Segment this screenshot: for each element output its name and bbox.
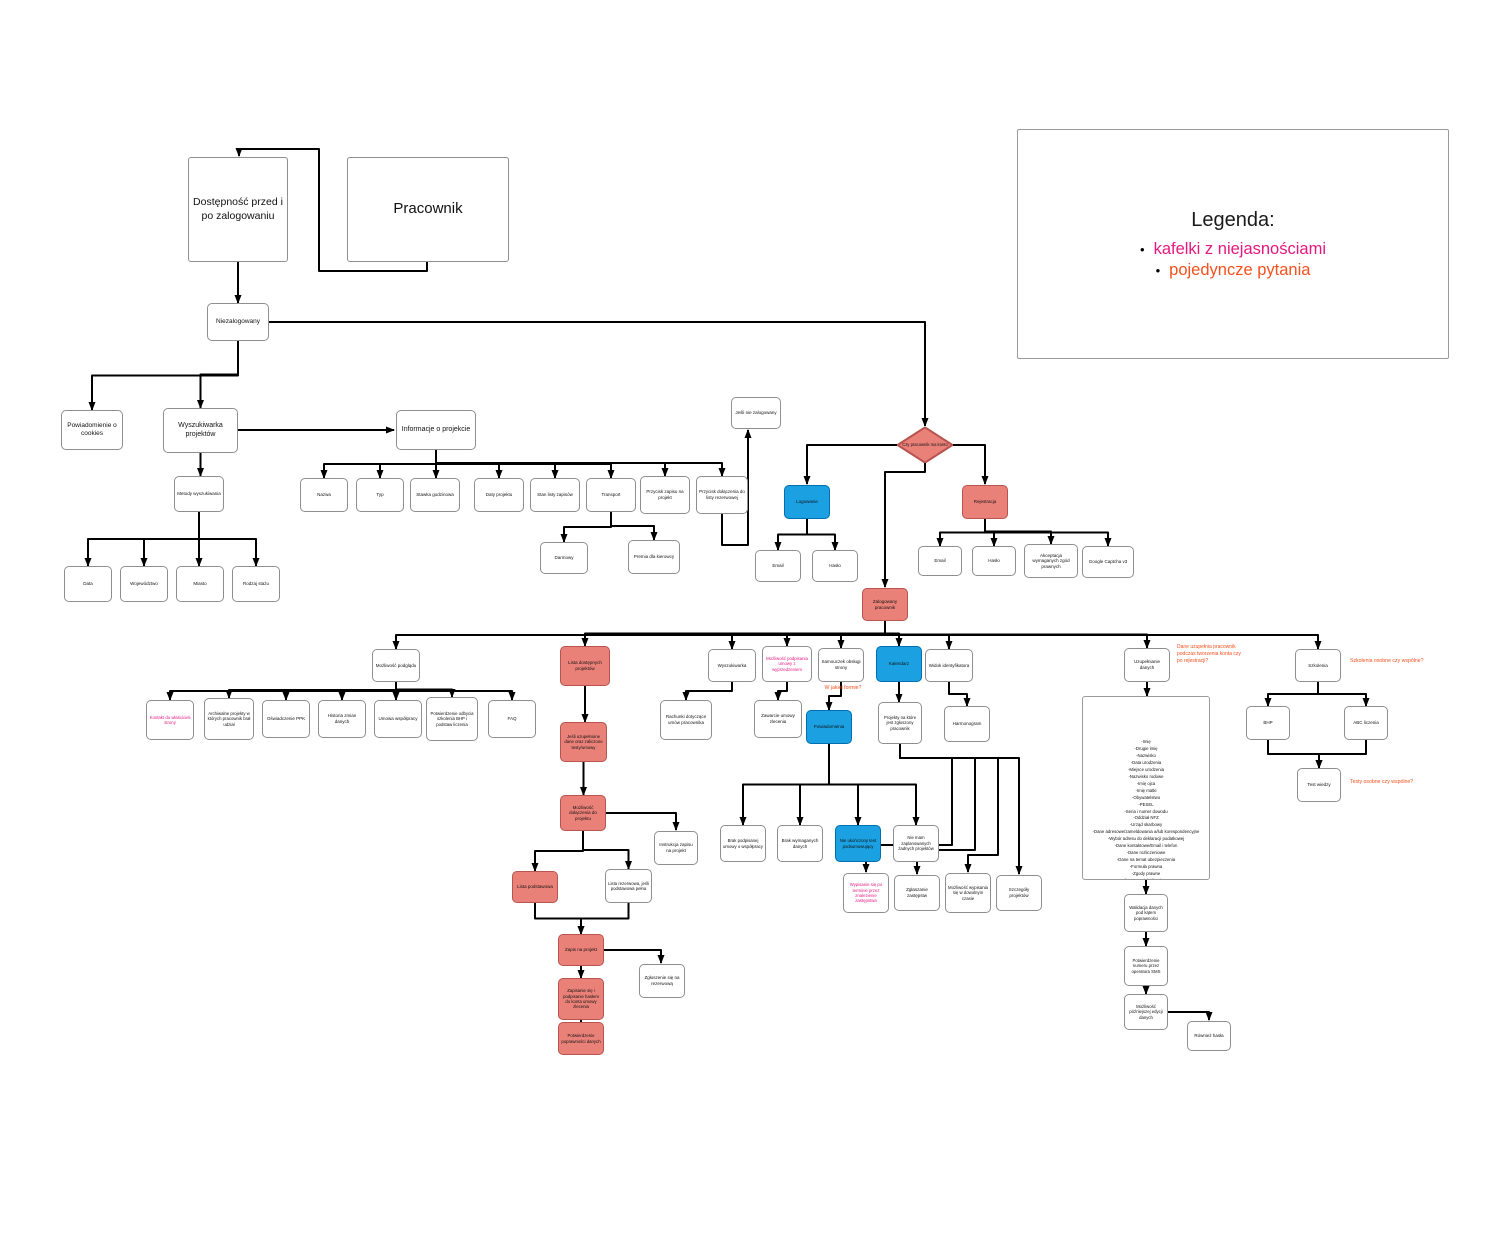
edge-zalogowany-pracownik-samouczek	[841, 621, 885, 648]
node-email-logowanie: Email	[755, 550, 801, 582]
edge-powiadomienia-brak-danych	[800, 744, 829, 825]
node-rejestracja: Rejestracja	[962, 485, 1008, 519]
node-uzupelnianie-danych-label: Uzupełnianie danych	[1127, 659, 1167, 670]
edge-lista-podstawowa-zapis-na-projekt	[535, 903, 581, 934]
node-daty-projektu-label: Daty projektu	[486, 492, 513, 498]
node-harmonogram-label: Harmonogram	[953, 721, 982, 727]
node-archiwalne-projekty: Archiwalne projekty w których pracownik …	[204, 698, 254, 740]
node-wojewodztwo: Województwo	[120, 566, 168, 602]
node-walidacja-danych-label: Walidacja danych pod kątem poprawności	[1127, 905, 1165, 921]
edge-bhp-test-wiedzy	[1268, 740, 1319, 768]
node-historia-zmian-label: Historia zmian danych	[321, 713, 363, 724]
node-rodzaj-stazu: Rodzaj stażu	[232, 566, 280, 602]
node-rodzaj-stazu-label: Rodzaj stażu	[243, 581, 269, 587]
node-niezalogowany-label: Niezalogowany	[216, 318, 260, 326]
edge-transport-darmowy	[564, 512, 611, 542]
edge-niezalogowany-czy-pracownik-ma-konto	[269, 322, 925, 426]
edge-abc-liczenia-test-wiedzy	[1319, 740, 1366, 768]
node-kalendarz-label: Kalendarz	[889, 661, 909, 667]
node-zapisanie-sie: Zapisanie się i podpisanie hasłem do kon…	[558, 978, 604, 1020]
legend-box: Legenda: • kafelki z niejasnościami • po…	[1017, 129, 1449, 359]
node-nazwa: Nazwa	[300, 478, 348, 512]
node-oswiadczenie-ppk: Oświadczenie PPK	[262, 700, 310, 738]
node-archiwalne-projekty-label: Archiwalne projekty w których pracownik …	[207, 711, 251, 727]
node-pracownik: Pracownik	[347, 157, 509, 262]
edge-wyszukiwarka-rachunki	[686, 682, 732, 700]
node-logowanie-label: Logowanie	[796, 499, 818, 505]
node-mozliwosc-wypisania-label: Możliwość wypisania się w dowolnym czasi…	[948, 885, 988, 901]
node-mozliwosc-edycji: Możliwość późniejszej edycji danych	[1124, 994, 1168, 1030]
node-zapis-na-projekt: Zapis na projekt	[558, 934, 604, 966]
node-czy-pracownik-ma-konto-label: Czy pracownik ma konto	[902, 442, 948, 447]
node-brak-danych: Brak wymaganych danych	[777, 825, 823, 862]
node-wyszukiwarka: Wyszukiwarka	[708, 649, 756, 682]
note-samouczek-forma: W jakiej formie?	[816, 685, 870, 692]
bullet-icon: •	[1140, 242, 1145, 257]
node-umowa-wspolpracy-label: Umowa współpracy	[378, 716, 417, 722]
edge-transport-premia-dla-kierowcy	[611, 512, 654, 540]
node-logowanie: Logowanie	[784, 485, 830, 519]
node-pracownik-label: Pracownik	[393, 200, 462, 219]
node-mozliwosc-podpisania-label: Możliwość podpisania umowy z wyprzedzeni…	[765, 656, 809, 672]
legend-item-single-questions: • pojedyncze pytania	[1156, 261, 1311, 280]
edge-metody-wyszukiwania-rodzaj-stazu	[199, 512, 256, 566]
edge-logowanie-email-logowanie	[778, 519, 807, 550]
node-widok-identyfikatora: Widok identyfikatora	[925, 649, 973, 682]
node-potwierdzenie-sms: Potwierdzenie numeru przez operatora SMS	[1124, 946, 1168, 986]
node-mozliwosc-podgladu: Możliwość podglądu	[372, 649, 420, 682]
node-haslo-logowanie: Hasło	[812, 550, 858, 582]
node-przycisk-zapisu-label: Przycisk zapisu na projekt	[643, 489, 687, 500]
node-powiadomienia: Powiadomienia	[806, 710, 852, 744]
node-nazwa-label: Nazwa	[317, 492, 331, 498]
node-lista-podstawowa-label: Lista podstawowa	[517, 884, 553, 890]
node-stan-listy-zapisow-label: Stan listy zapisów	[537, 492, 573, 498]
node-transport-label: Transport	[601, 492, 620, 498]
node-stawka-godzinowa-label: Stawka godzinowa	[416, 492, 454, 498]
legend-item-ambiguous-tiles: • kafelki z niejasnościami	[1140, 240, 1326, 259]
legend-item-ambiguous-tiles-label: kafelki z niejasnościami	[1154, 240, 1326, 259]
node-test-wiedzy-label: Test wiedzy	[1307, 782, 1330, 788]
node-wypisanie-po-terminie-label: Wypisanie się po terminie przez znalezie…	[846, 882, 886, 903]
node-wojewodztwo-label: Województwo	[130, 581, 158, 587]
node-akceptacja-zgod: Akceptacja wymaganych zgód prawnych	[1024, 544, 1078, 578]
node-metody-wyszukiwania: Metody wyszukiwania	[174, 476, 224, 512]
edge-informacje-o-projekcie-przycisk-dolaczenia	[436, 450, 722, 476]
edge-mozliwosc-podgladu-historia-zmian	[342, 682, 396, 700]
node-zgloszenie-rezerwowa-label: Zgłoszenie się na rezerwową	[642, 975, 682, 986]
node-zalogowany-pracownik: Zalogowany pracownik	[862, 588, 908, 621]
node-mozliwosc-podgladu-label: Możliwość podglądu	[376, 663, 417, 669]
node-typ-label: Typ	[376, 492, 383, 498]
node-projekty-zgloszony: Projekty na które jest zgłoszony pracown…	[878, 702, 922, 744]
node-email-logowanie-label: Email	[772, 563, 783, 569]
node-harmonogram: Harmonogram	[944, 706, 990, 742]
node-wyszukiwarka-projektow-label: Wyszukiwarka projektów	[166, 422, 235, 440]
diagram-canvas: Dostępność przed i po zalogowaniuPracown…	[0, 0, 1500, 1245]
node-email-rejestracja-label: Email	[934, 558, 945, 564]
edge-rejestracja-email-rejestracja	[940, 519, 985, 546]
node-cookies: Powiadomienie o cookies	[61, 410, 123, 450]
edge-widok-identyfikatora-harmonogram	[949, 682, 967, 706]
node-stan-listy-zapisow: Stan listy zapisów	[530, 478, 580, 512]
node-potwierdzenie-poprawnosci-label: Potwierdzenie poprawności danych	[561, 1033, 601, 1044]
node-szczegoly-projektow-label: Szczegóły projektów	[999, 887, 1039, 898]
node-mozliwosc-podpisania: Możliwość podpisania umowy z wyprzedzeni…	[762, 646, 812, 682]
node-zawarcie-umowy: Zawarcie umowy zlecenia	[754, 700, 802, 738]
node-haslo-rejestracja: Hasło	[972, 546, 1016, 576]
edge-mozliwosc-edycji-rowniez-hasla	[1168, 1012, 1209, 1020]
edge-lista-rezerwowa-zapis-na-projekt	[581, 903, 629, 934]
node-zalogowany-pracownik-label: Zalogowany pracownik	[865, 599, 905, 610]
node-lista-dostepnych: Lista dostępnych projektów	[560, 646, 610, 686]
node-jesli-uzupelnione-label: Jeśli uzupełnione dane oraz zaliczone te…	[563, 734, 604, 750]
node-google-captcha-label: Google Captcha v3	[1089, 559, 1128, 565]
node-dostepnosc-label: Dostępność przed i po zalogowaniu	[191, 196, 285, 222]
edge-mozliwosc-dolaczenia-lista-rezerwowa	[583, 831, 629, 869]
node-potwierdzenie-sms-label: Potwierdzenie numeru przez operatora SMS	[1127, 958, 1165, 974]
edge-powiadomienia-nie-mam-projektow	[829, 744, 916, 825]
node-bhp-label: BHP	[1263, 720, 1272, 726]
legend-title: Legenda:	[1191, 209, 1274, 232]
node-uzupelnianie-danych: Uzupełnianie danych	[1124, 648, 1170, 682]
node-przycisk-dolaczenia: Przycisk dołączenia do listy rezerwowej	[696, 476, 748, 514]
node-haslo-logowanie-label: Hasło	[829, 563, 841, 569]
node-lista-dostepnych-label: Lista dostępnych projektów	[563, 660, 607, 671]
node-kontakt-wlasciciele: Kontakt do właścicieli strony	[146, 700, 194, 740]
node-szczegoly-projektow: Szczegóły projektów	[996, 875, 1042, 911]
node-nie-mam-projektow-label: Nie mam zaplanowanych żadnych projektów	[896, 835, 936, 851]
node-szkolenia: Szkolenia	[1295, 649, 1341, 682]
node-brak-danych-label: Brak wymaganych danych	[780, 838, 820, 849]
node-rowniez-hasla-label: Również hasła	[1194, 1033, 1223, 1039]
node-premia-dla-kierowcy-label: Premia dla kierowcy	[634, 554, 674, 560]
node-przycisk-dolaczenia-label: Przycisk dołączenia do listy rezerwowej	[699, 489, 745, 500]
node-nie-mam-projektow: Nie mam zaplanowanych żadnych projektów	[893, 825, 939, 862]
node-miasto-label: Miasto	[193, 581, 206, 587]
node-zglaszanie-zastepstw-label: Zgłaszanie zastępstw	[897, 887, 937, 898]
note-uzupelnianie-danych: Dane uzupełnia pracownik podczas tworzen…	[1177, 644, 1243, 664]
node-samouczek-label: Samouczek obsługi strony	[821, 659, 861, 670]
edge-czy-pracownik-ma-konto-rejestracja	[953, 445, 985, 484]
edge-szkolenia-bhp	[1268, 682, 1318, 706]
node-jesli-nie-zalogowany: Jeśli nie zalogowany	[731, 397, 781, 429]
node-nie-ukonczony-test-label: Nie ukończony test podsumowujący	[838, 838, 878, 849]
node-nie-ukonczony-test: Nie ukończony test podsumowujący	[835, 825, 881, 862]
node-zapisanie-sie-label: Zapisanie się i podpisanie hasłem do kon…	[561, 988, 601, 1009]
edge-metody-wyszukiwania-wojewodztwo	[144, 512, 199, 566]
node-brak-umowy: Brak podpisanej umowy o współpracy	[720, 825, 766, 862]
node-miasto: Miasto	[176, 566, 224, 602]
node-typ: Typ	[356, 478, 404, 512]
node-oswiadczenie-ppk-label: Oświadczenie PPK	[267, 716, 305, 722]
node-przycisk-zapisu: Przycisk zapisu na projekt	[640, 476, 690, 514]
node-wypisanie-po-terminie: Wypisanie się po terminie przez znalezie…	[843, 873, 889, 913]
node-lista-podstawowa: Lista podstawowa	[512, 871, 558, 903]
node-wyszukiwarka-projektow: Wyszukiwarka projektów	[163, 408, 238, 453]
node-zawarcie-umowy-label: Zawarcie umowy zlecenia	[757, 713, 799, 724]
node-dane-pracownika-lista: -Imię -Drugie imię -Nazwisko -Data urodz…	[1082, 696, 1210, 880]
node-jesli-uzupelnione: Jeśli uzupełnione dane oraz zaliczone te…	[560, 722, 607, 762]
node-lista-rezerwowa-label: Lista rezerwowa, jeśli podstawowa pełna	[608, 881, 649, 892]
edge-mozliwosc-podgladu-potwierdzenie-bhp	[396, 682, 452, 697]
node-rejestracja-label: Rejestracja	[974, 499, 997, 505]
edge-czy-pracownik-ma-konto-logowanie	[807, 445, 897, 484]
node-mozliwosc-dolaczenia: Możliwość dołączenia do projektu	[560, 795, 606, 831]
node-instrukcja-zapisu: Instrukcja zapisu na projekt	[654, 831, 698, 865]
node-potwierdzenie-bhp: Potwierdzenie odbycia szkolenia BHP i po…	[426, 697, 478, 741]
node-walidacja-danych: Walidacja danych pod kątem poprawności	[1124, 894, 1168, 932]
note-szkolenia: Szkolenia osobne czy wspólne?	[1350, 658, 1470, 665]
node-potwierdzenie-bhp-label: Potwierdzenie odbycia szkolenia BHP i po…	[429, 711, 475, 727]
node-jesli-nie-zalogowany-label: Jeśli nie zalogowany	[735, 410, 776, 416]
node-akceptacja-zgod-label: Akceptacja wymaganych zgód prawnych	[1027, 553, 1075, 570]
node-kontakt-wlasciciele-label: Kontakt do właścicieli strony	[149, 715, 191, 726]
node-test-wiedzy: Test wiedzy	[1297, 768, 1341, 802]
legend-item-single-questions-label: pojedyncze pytania	[1169, 261, 1310, 280]
node-stawka-godzinowa: Stawka godzinowa	[410, 478, 460, 512]
node-niezalogowany: Niezalogowany	[207, 303, 269, 341]
edge-niezalogowany-wyszukiwarka-projektow	[201, 341, 239, 408]
node-daty-projektu: Daty projektu	[474, 478, 524, 512]
node-brak-umowy-label: Brak podpisanej umowy o współpracy	[723, 838, 763, 849]
node-premia-dla-kierowcy: Premia dla kierowcy	[628, 540, 680, 574]
node-mozliwosc-wypisania: Możliwość wypisania się w dowolnym czasi…	[945, 873, 991, 913]
node-mozliwosc-edycji-label: Możliwość późniejszej edycji danych	[1127, 1004, 1165, 1020]
node-zgloszenie-rezerwowa: Zgłoszenie się na rezerwową	[639, 964, 685, 998]
node-zglaszanie-zastepstw: Zgłaszanie zastępstw	[894, 875, 940, 911]
node-zapis-na-projekt-label: Zapis na projekt	[565, 947, 597, 953]
edge-mozliwosc-dolaczenia-lista-podstawowa	[535, 831, 583, 871]
node-lista-rezerwowa: Lista rezerwowa, jeśli podstawowa pełna	[605, 869, 652, 903]
node-darmowy-label: Darmowy	[554, 555, 573, 561]
node-wyszukiwarka-label: Wyszukiwarka	[718, 663, 747, 669]
node-dane-pracownika-lista-label: -Imię -Drugie imię -Nazwisko -Data urodz…	[1093, 739, 1200, 880]
edge-mozliwosc-podpisania-zawarcie-umowy	[778, 682, 787, 700]
node-dostepnosc: Dostępność przed i po zalogowaniu	[188, 157, 288, 262]
node-kalendarz: Kalendarz	[876, 646, 922, 682]
node-darmowy: Darmowy	[540, 542, 588, 574]
edge-mozliwosc-dolaczenia-instrukcja-zapisu	[606, 813, 676, 830]
node-rachunki-label: Rachunki dotyczące umów pracownika	[663, 714, 709, 725]
node-mozliwosc-dolaczenia-label: Możliwość dołączenia do projektu	[563, 805, 603, 822]
edge-logowanie-haslo-logowanie	[807, 519, 835, 550]
node-samouczek: Samouczek obsługi strony	[818, 648, 864, 682]
edge-rejestracja-google-captcha	[985, 519, 1108, 546]
note-testy: Testy osobne czy wspólne?	[1350, 779, 1470, 786]
node-bhp: BHP	[1246, 706, 1290, 740]
node-instrukcja-zapisu-label: Instrukcja zapisu na projekt	[657, 842, 695, 853]
node-projekty-zgloszony-label: Projekty na które jest zgłoszony pracown…	[881, 715, 919, 731]
node-informacje-o-projekcie-label: Informacje o projekcie	[402, 426, 470, 435]
node-widok-identyfikatora-label: Widok identyfikatora	[929, 663, 970, 669]
node-haslo-rejestracja-label: Hasło	[988, 558, 1000, 564]
node-metody-wyszukiwania-label: Metody wyszukiwania	[177, 491, 221, 497]
node-abc-liczenia: ABC liczenia	[1344, 706, 1388, 740]
node-powiadomienia-label: Powiadomienia	[814, 724, 845, 730]
node-czy-pracownik-ma-konto: Czy pracownik ma konto	[897, 427, 953, 463]
node-historia-zmian: Historia zmian danych	[318, 700, 366, 738]
edge-zapis-na-projekt-zgloszenie-rezerwowa	[604, 950, 661, 963]
edge-szkolenia-abc-liczenia	[1318, 682, 1366, 706]
node-rachunki: Rachunki dotyczące umów pracownika	[660, 700, 712, 740]
node-faq-label: FAQ	[507, 716, 516, 722]
node-transport: Transport	[586, 478, 636, 512]
node-email-rejestracja: Email	[918, 546, 962, 576]
node-abc-liczenia-label: ABC liczenia	[1353, 720, 1379, 726]
node-informacje-o-projekcie: Informacje o projekcie	[396, 410, 476, 450]
bullet-icon: •	[1156, 263, 1161, 278]
node-data: Data	[64, 566, 112, 602]
node-google-captcha: Google Captcha v3	[1082, 546, 1134, 578]
node-data-label: Data	[83, 581, 93, 587]
node-szkolenia-label: Szkolenia	[1308, 663, 1328, 669]
node-faq: FAQ	[488, 700, 536, 738]
node-umowa-wspolpracy: Umowa współpracy	[374, 700, 422, 738]
node-rowniez-hasla: Również hasła	[1187, 1021, 1231, 1051]
edge-informacje-o-projekcie-typ	[380, 450, 436, 478]
node-cookies-label: Powiadomienie o cookies	[64, 422, 120, 438]
node-potwierdzenie-poprawnosci: Potwierdzenie poprawności danych	[558, 1022, 604, 1055]
